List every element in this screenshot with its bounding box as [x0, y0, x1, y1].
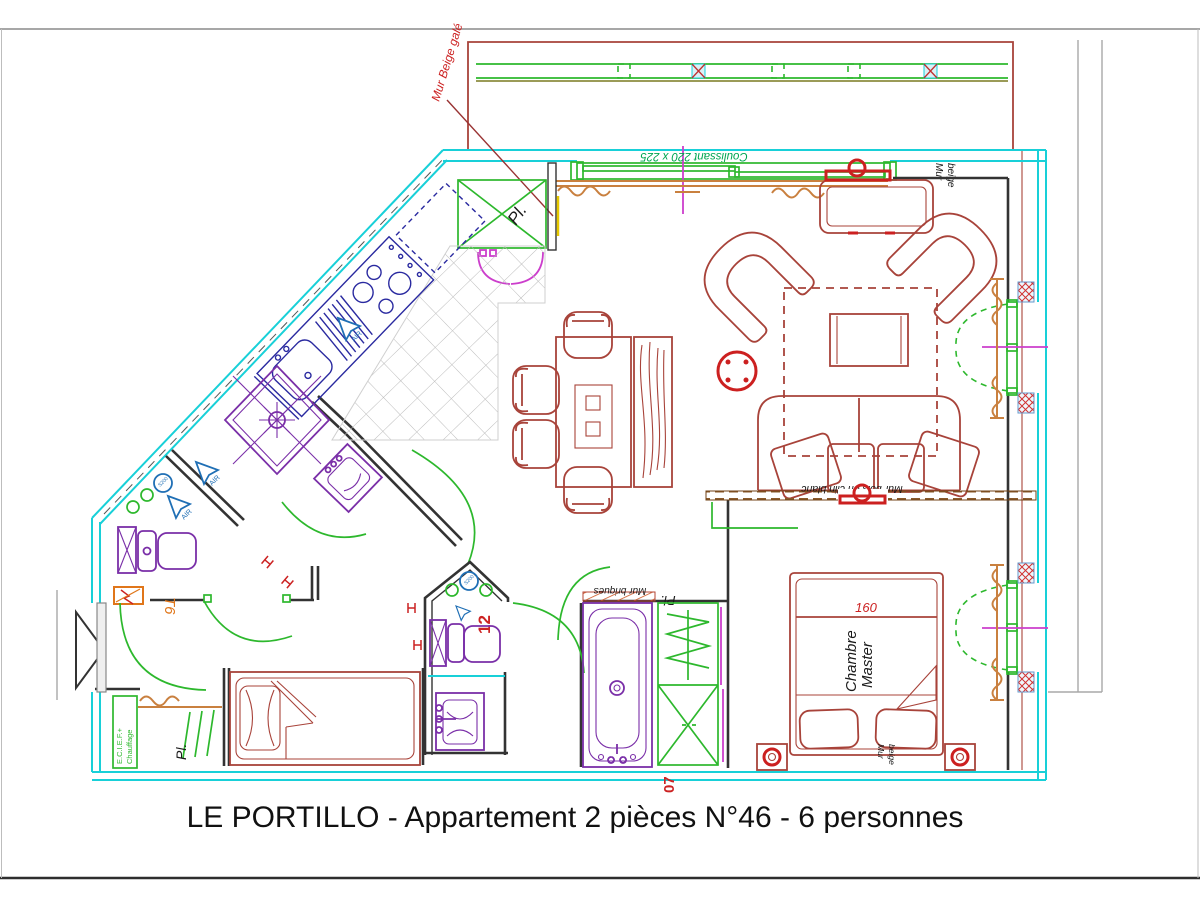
air-label-1: AIR: [208, 474, 221, 487]
dining-chair: [513, 420, 559, 468]
placard-label-bathroom: Pl.: [660, 593, 675, 608]
mur-beige-gale-text: Mur Beige galé: [428, 21, 465, 103]
wardrobe-icon: [658, 603, 718, 765]
wc2: S200 12: [425, 562, 508, 755]
entry-door-slab: [97, 603, 106, 692]
curtain-right-1: [990, 279, 1004, 418]
toilet-icon: [118, 527, 196, 573]
coulissant-label: Coulissant 220 x 225: [640, 150, 748, 162]
cushion-icon: [907, 430, 980, 498]
chambre-line1: Chambre: [843, 630, 860, 692]
closet-kitchen: Pl.: [458, 180, 546, 248]
entry-door-arc: [120, 603, 206, 690]
single-bed-icon: [230, 672, 420, 765]
door-hinge-marks: [262, 556, 421, 650]
wood-clad-wall: Mur bois en clin blanc: [706, 483, 1036, 528]
label-mur-beige-bottom: Mur beige: [876, 744, 897, 765]
window-post: [1018, 563, 1034, 583]
living-hall-door-arc: [412, 450, 475, 564]
chambre-line2: Master: [859, 641, 876, 688]
plan-title: LE PORTILLO - Appartement 2 pièces N°46 …: [187, 801, 964, 834]
ecief-label: E.C.I.E.F.+: [115, 727, 124, 764]
sideboard-tv: [820, 160, 933, 233]
chambre-label: ChambreMaster: [843, 630, 876, 692]
utility-closet: E.C.I.E.F.+ Chauffage Pl.: [113, 696, 222, 768]
electrical-panel-icon: [114, 587, 143, 604]
window-bedroom: [956, 563, 1048, 700]
mur-label-2: Mur: [876, 744, 886, 760]
bed-width-label: 160: [855, 600, 877, 615]
bathtub-icon: [583, 603, 652, 767]
s200-label-2: S200: [463, 574, 476, 587]
dining-bench: [634, 337, 672, 487]
floor-plan-sheet: Mur Beige galé Coulissant 220 x 225 Mur …: [0, 0, 1200, 900]
wc1: T6: [114, 527, 196, 615]
dining-table: [556, 337, 631, 487]
placard-label-bottom: Pl.: [173, 744, 189, 760]
window-post: [1018, 282, 1034, 302]
shower-drain-icon: [259, 402, 295, 438]
dining-chair: [564, 467, 612, 513]
beige-label-2: beige: [887, 744, 897, 765]
mur-briques-label: Mur briques: [594, 585, 647, 596]
num12-label: 12: [475, 615, 494, 634]
air-label-2: AIR: [180, 508, 193, 521]
armchair: [689, 217, 816, 344]
window-post: [1018, 672, 1034, 692]
t6-label: T6: [161, 597, 178, 615]
washbasin-shower-room: [314, 444, 382, 512]
coffee-table: [830, 314, 908, 366]
wc1-door-arc: [204, 601, 292, 641]
beige-label: beige: [945, 163, 956, 188]
railing-post-icon: [618, 64, 860, 78]
placard-label-kitchen: Pl.: [504, 201, 531, 228]
dining-chair: [564, 312, 612, 358]
balcony-top: [468, 42, 1013, 150]
master-bedroom: 160 ChambreMaster Mur beige: [757, 573, 975, 770]
bathroom-door-arc: [513, 603, 584, 673]
chauffage-label: Chauffage: [125, 730, 134, 764]
railing-post-x-icon: [692, 64, 937, 78]
washbasin2-icon: [436, 693, 484, 750]
vent-s200-shower: S200: [127, 474, 172, 513]
window-post: [1018, 393, 1034, 413]
side-table-icon: [718, 352, 756, 390]
window-living: [956, 279, 1048, 418]
pillow-icon: [799, 709, 936, 749]
num07-label: 07: [661, 776, 678, 793]
bathroom: Mur briques Pl. 07: [583, 585, 723, 793]
s200-label-1: S200: [157, 476, 170, 489]
label-mur-beige-top: Mur beige: [933, 163, 956, 188]
floor-plan-canvas: Mur Beige galé Coulissant 220 x 225 Mur …: [0, 0, 1200, 900]
dining-chair: [513, 366, 559, 414]
curtain-top: [556, 181, 888, 198]
living-room: Mur bois en clin blanc: [513, 160, 1036, 528]
pillow-icon: [240, 686, 280, 750]
label-mur-beige-gale: Mur Beige galé: [428, 21, 553, 216]
air-arrow-kitchen: AIR: [338, 318, 364, 343]
toilet2-icon: [430, 620, 500, 666]
single-bed-area: E.C.I.E.F.+ Chauffage Pl.: [113, 672, 420, 768]
